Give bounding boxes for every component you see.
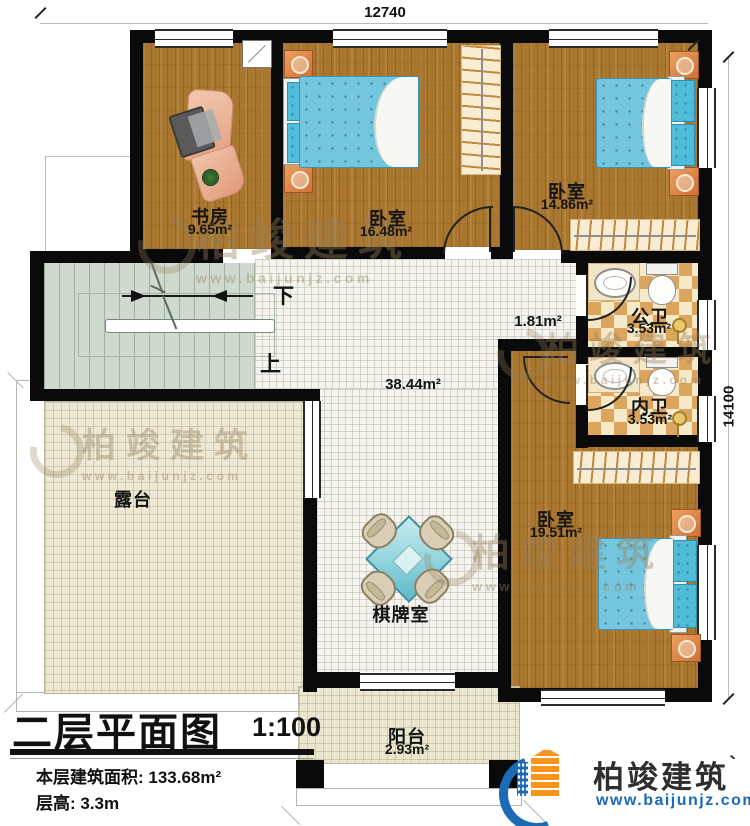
roof-outline-box	[45, 156, 133, 253]
door-leaf	[586, 365, 588, 407]
title-underline	[10, 749, 314, 755]
bed-pillow	[671, 124, 695, 166]
stair-down-label: 下	[260, 280, 308, 310]
wardrobe	[461, 45, 501, 175]
wall	[303, 498, 317, 692]
toilet-icon	[648, 368, 676, 396]
wall	[576, 263, 588, 275]
toilet-icon	[648, 275, 676, 305]
bedroom-right-area: 14.86m²	[517, 196, 617, 212]
corridor-area: 1.81m²	[488, 313, 588, 330]
balcony-pillar	[296, 760, 324, 788]
wall	[306, 672, 360, 688]
floor-plan-page: 柏竣建筑 www.baijunjz.com 柏竣建筑 www.baijunjz.…	[0, 0, 750, 826]
nightstand	[669, 167, 699, 196]
stair-arrow-icon	[131, 290, 146, 302]
wardrobe	[573, 451, 700, 484]
bed-blanket	[374, 77, 418, 167]
nightstand	[284, 50, 313, 78]
dimension-tick	[34, 7, 46, 19]
nightstand	[671, 509, 701, 537]
bed	[596, 78, 672, 168]
title-underline-thin	[10, 758, 314, 759]
game-room-label: 棋牌室	[351, 601, 451, 627]
bed	[299, 76, 419, 168]
wall	[30, 389, 320, 401]
stair-arrow-icon	[212, 290, 227, 302]
plan-scale: 1:100	[252, 712, 321, 743]
bed-blanket	[642, 79, 671, 167]
window	[549, 29, 658, 48]
balcony-area: 2.93m²	[357, 741, 457, 757]
window	[697, 88, 716, 168]
nightstand	[669, 51, 699, 79]
brand-logo-building-icon	[517, 762, 528, 796]
plant-icon	[203, 170, 218, 185]
wardrobe	[570, 219, 700, 251]
door-leaf	[513, 206, 515, 252]
brand-website: www.baijunjz.com	[596, 792, 750, 810]
bedroom-top-area: 16.48m²	[336, 223, 436, 239]
brand-logo: 柏竣建筑` www.baijunjz.com	[497, 744, 747, 824]
wall	[30, 251, 143, 263]
window	[333, 29, 447, 48]
wall	[30, 251, 44, 401]
floor-area-text: 本层建筑面积: 133.68m²	[36, 763, 221, 788]
wall	[455, 672, 500, 688]
wall	[130, 30, 143, 263]
study-area: 9.65m²	[160, 221, 260, 237]
floor-height-text: 层高: 3.3m	[36, 789, 119, 814]
bed	[598, 538, 674, 630]
dimension-line	[40, 23, 708, 24]
toilet-icon	[646, 263, 678, 275]
wall	[271, 43, 283, 259]
bed-blanket	[644, 539, 673, 629]
public-bath-area: 3.53m²	[599, 320, 699, 336]
balcony-door-window	[360, 673, 455, 691]
stair-handrail	[105, 319, 275, 333]
nightstand	[284, 164, 313, 193]
wall	[576, 435, 710, 447]
window	[541, 689, 665, 706]
toilet-icon	[646, 357, 678, 368]
bedroom-bottom-area: 19.51m²	[506, 524, 606, 540]
brand-name: 柏竣建筑`	[593, 752, 739, 797]
inner-bath-area: 3.53m²	[600, 411, 700, 427]
dimension-top: 12740	[340, 4, 430, 21]
bed-pillow	[673, 584, 697, 628]
terrace-label: 露台	[83, 486, 183, 512]
wall	[491, 247, 513, 259]
dimension-right: 14100	[721, 378, 738, 436]
door-leaf	[489, 206, 491, 252]
window	[697, 545, 716, 640]
hall-area: 38.44m²	[363, 376, 463, 393]
bed-pillow	[671, 80, 695, 122]
wall	[561, 250, 710, 263]
bed-pillow	[673, 540, 697, 582]
balcony-bottom-railing	[296, 788, 522, 806]
nightstand	[671, 634, 701, 662]
wall	[576, 347, 710, 357]
window	[155, 29, 233, 48]
wall	[271, 247, 445, 259]
window	[303, 401, 321, 498]
brand-logo-building-icon	[531, 748, 559, 796]
wall	[500, 43, 513, 247]
door-leaf	[586, 275, 588, 317]
stair-up-label: 上	[247, 348, 295, 378]
outline-diagonal	[281, 806, 300, 825]
